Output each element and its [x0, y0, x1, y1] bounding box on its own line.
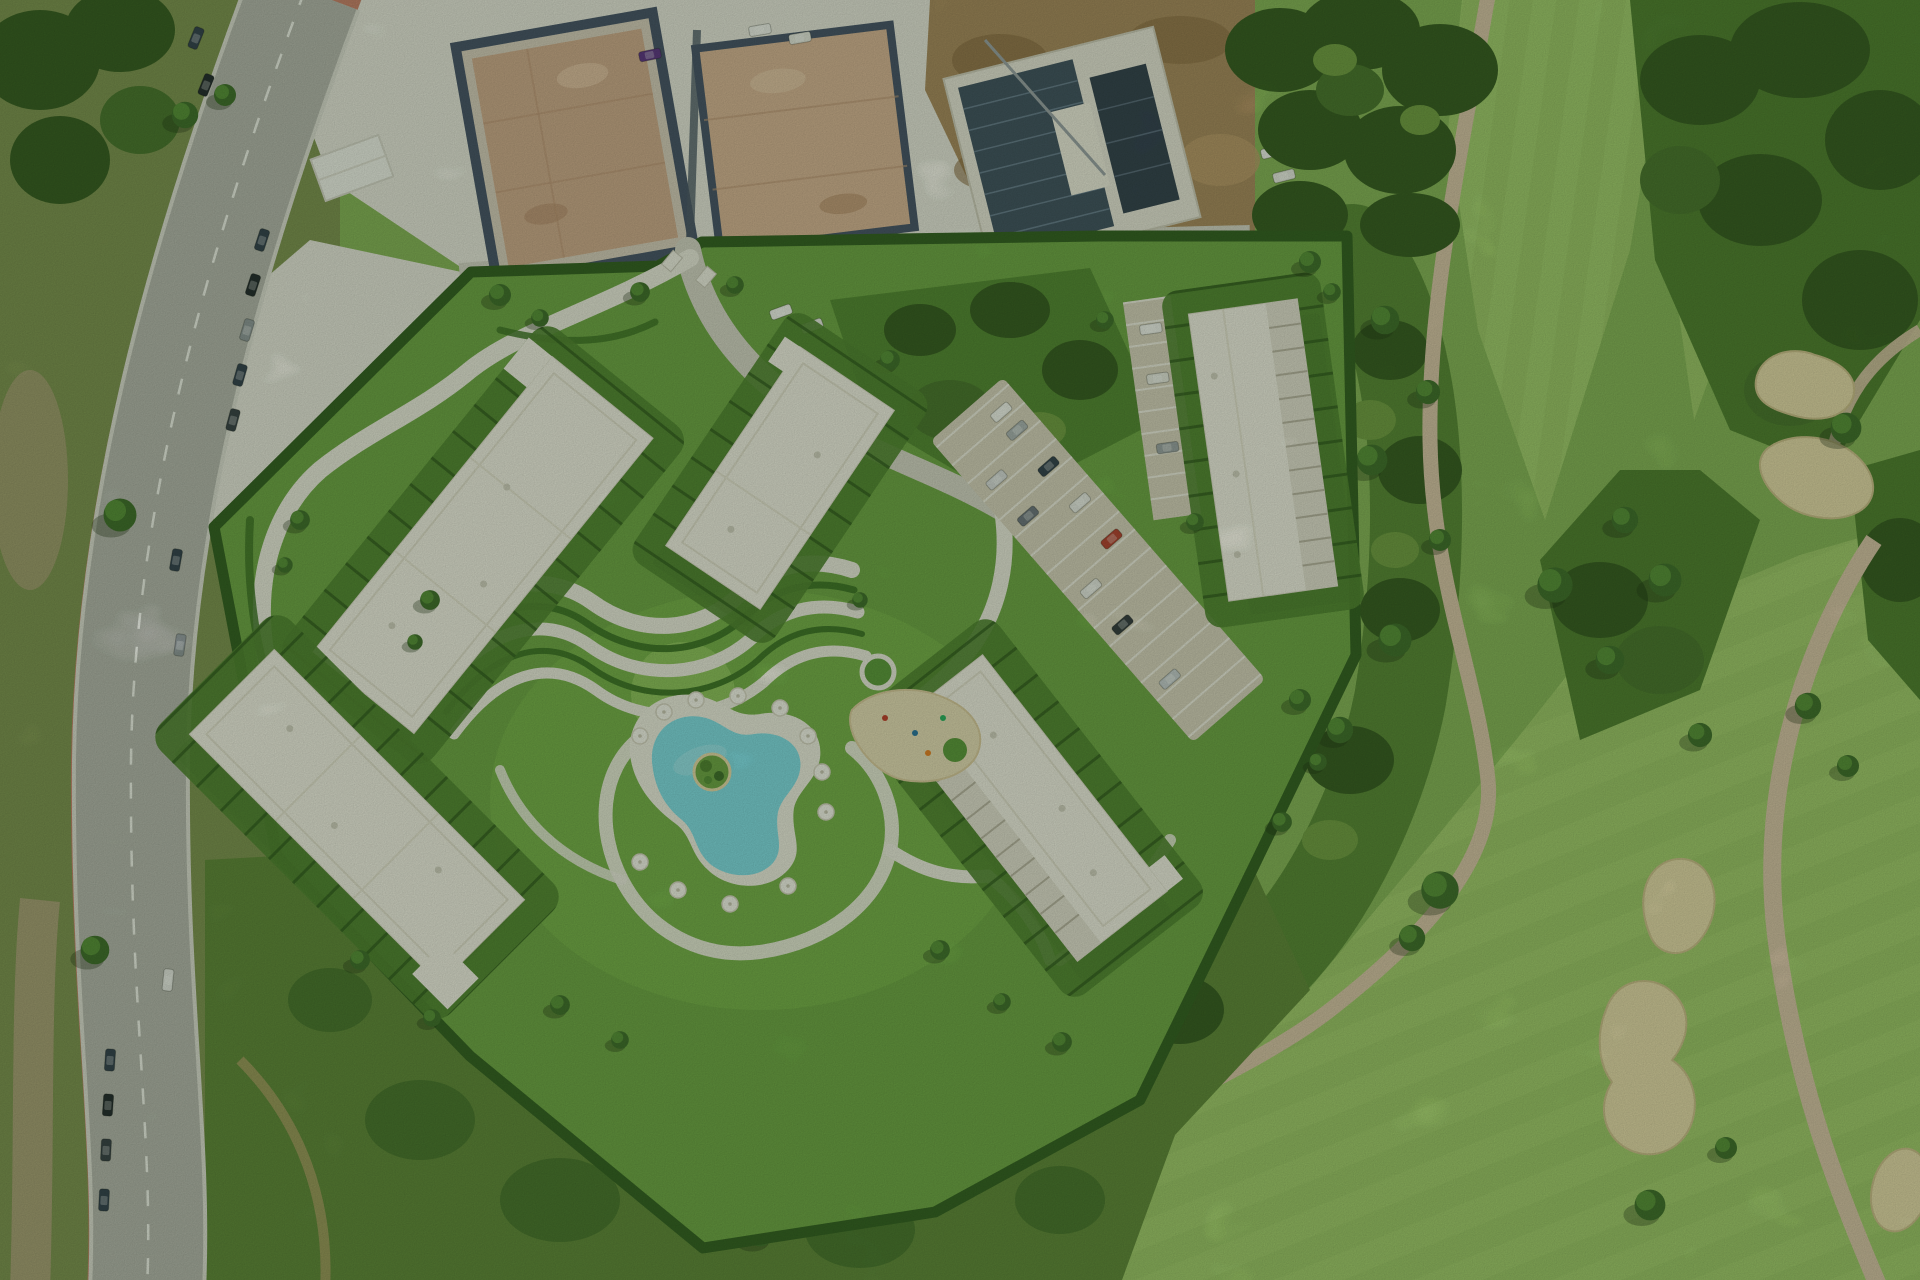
film-grain-overlay: [0, 0, 1920, 1280]
aerial-photo-canvas: aerial photograph: [0, 0, 1920, 1280]
aerial-photo-stage: aerial photograph: [0, 0, 1920, 1280]
aerial-photo: aerial photograph: [0, 0, 1920, 1280]
